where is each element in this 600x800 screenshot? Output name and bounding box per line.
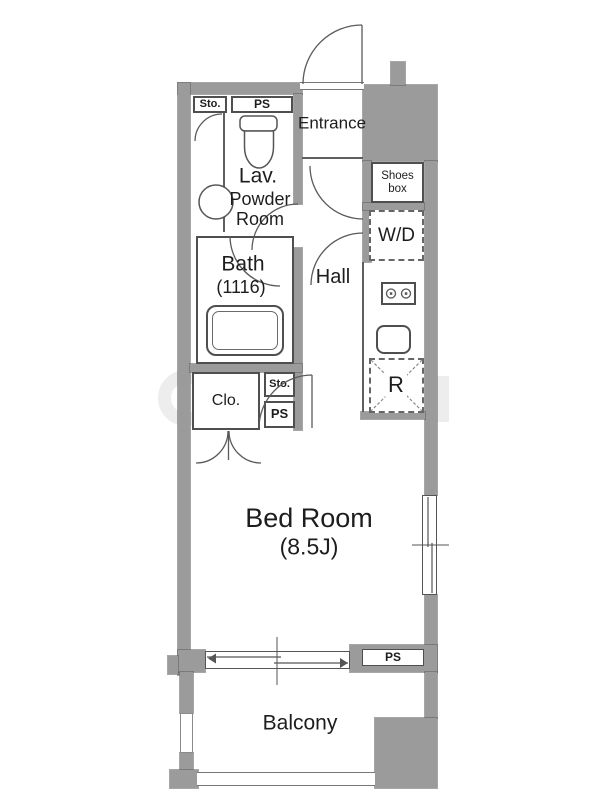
balcony-railing (197, 772, 375, 786)
wall-shoes-wd-band (363, 203, 425, 210)
closet-door-left-arc (196, 431, 228, 463)
lavatory-label: Lav. (239, 164, 277, 187)
entrance-step-line (302, 157, 363, 159)
stove-box (381, 282, 416, 305)
powder-room-label: Powder Room (225, 190, 295, 230)
wall-counter-end (361, 412, 425, 419)
watermark-bar (437, 376, 449, 422)
shoes-box-label: Shoes box (377, 170, 419, 196)
wall-powder-hall-upper (294, 94, 302, 204)
wall-top (178, 83, 302, 94)
refrigerator-label: R (385, 373, 407, 397)
wall-left (178, 83, 190, 675)
pipe-space-mid-box: PS (264, 401, 295, 428)
bath-label: Bath (221, 252, 264, 275)
wall-left-nub (168, 656, 178, 674)
washer-dryer-box: W/D (369, 210, 424, 261)
pipe-space-bottom-box: PS (362, 649, 424, 666)
entrance-label: Entrance (298, 115, 366, 134)
window-right (422, 495, 437, 595)
wall-balcony-corner-block (375, 718, 437, 788)
wall-balcony-right (425, 672, 437, 718)
entrance-door-arc (303, 25, 362, 84)
bedroom-label: Bed Room (245, 504, 373, 534)
kitchen-counter-edge-line (362, 262, 364, 412)
wall-balcony-left-upper (180, 672, 193, 713)
wall-pillar-notch (391, 62, 405, 85)
wall-balcony-foot (170, 770, 198, 788)
pipe-space-top-box: PS (231, 96, 293, 113)
entrance-door-threshold (300, 82, 364, 90)
closet-label: Clo. (212, 392, 240, 410)
wall-powder-hall-lower (294, 248, 302, 430)
storage-top-label: Sto. (200, 98, 221, 110)
pipe-space-mid-label: PS (271, 407, 288, 422)
kitchen-sink (376, 325, 411, 354)
storage-mid-label: Sto. (269, 378, 290, 390)
storage-top-box: Sto. (193, 96, 227, 113)
shoes-box: Shoes box (371, 162, 424, 203)
wall-pillar-block (363, 85, 437, 161)
closet-door-right-arc (229, 431, 261, 463)
closet-box: Clo. (192, 372, 260, 430)
bathtub-inner (212, 311, 278, 350)
window-balcony (205, 651, 350, 669)
pipe-space-top-label: PS (254, 98, 270, 111)
wall-bath-closet-band (190, 364, 302, 372)
storage-top-door-arc (195, 114, 222, 141)
wall-bedroom-bottom-left (178, 650, 205, 672)
pipe-space-bottom-label: PS (385, 651, 401, 664)
bath-size-label: (1116) (216, 278, 265, 298)
hall-door-arc (310, 166, 363, 219)
bedroom-size-label: (8.5J) (280, 534, 339, 559)
storage-mid-box: Sto. (264, 372, 295, 397)
hall-label: Hall (316, 266, 350, 288)
wall-right-upper (425, 161, 437, 495)
bathtub (206, 305, 284, 356)
balcony-label: Balcony (263, 711, 338, 734)
toilet-icon (240, 116, 277, 168)
floor-plan: Sto. PS Shoes box W/D Clo. Sto. PS PS En… (0, 0, 600, 800)
washer-dryer-label: W/D (378, 225, 415, 246)
balcony-partition-panel (180, 713, 193, 753)
